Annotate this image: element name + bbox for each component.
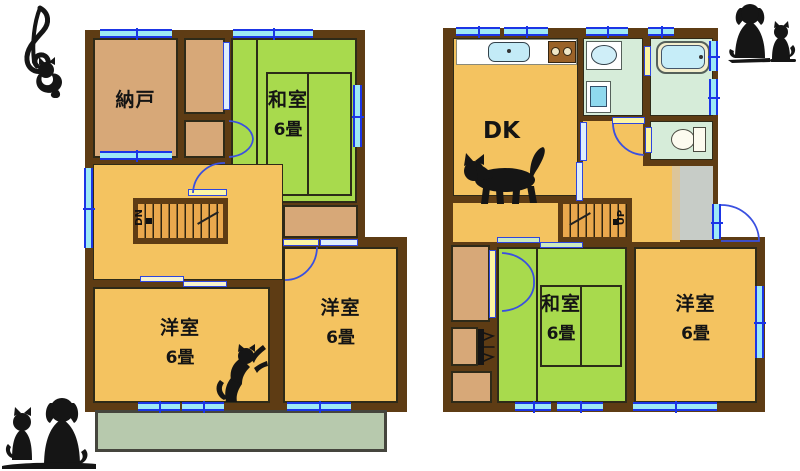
floor2-stairs-label: DN [134,209,145,226]
floor1-closet-2 [451,327,478,366]
room-name: 洋室 [110,312,250,344]
folding-closet-door [476,327,496,367]
room-name: 洋室 [283,292,398,324]
stove-burner [563,47,572,56]
floor2-closet-a-slider [223,42,230,110]
floor1-closet-3 [451,371,492,403]
stove-burner [551,47,560,56]
room-name: 納戸 [93,84,178,116]
bathroom-door [644,46,651,76]
reaching-cat-icon [212,344,268,404]
room-name: 和室 [500,288,622,320]
window [287,402,351,411]
floor2-sliding-window [320,239,358,246]
floor2-closet-c [283,205,358,238]
floor1-youshitsu-label: 洋室 6畳 [634,288,757,349]
bathtub-drain [699,55,703,59]
room-name: 洋室 [634,288,757,320]
washroom-door-swing [611,122,646,157]
window [709,41,718,71]
faucet-dot [507,49,511,53]
window [586,27,628,36]
window [100,29,172,38]
floor2-washitsu-label: 和室 6畳 [240,84,336,145]
window [515,402,551,411]
treble-clef-cat-icon [6,4,74,98]
wash-basin-bowl [591,45,617,65]
floor2-closet-a [184,38,225,114]
toilet-bowl [671,129,695,150]
room-name: 和室 [240,84,336,116]
floor2-hall-sliding-door [183,281,227,287]
floor2-washitsu-door-swing [189,160,229,196]
floor1-closet-1-door [489,250,496,318]
window [633,402,717,411]
floor2-balcony [95,410,387,452]
floor1-closet-1 [451,245,490,322]
room-size: 6畳 [634,320,757,349]
cat-and-dog-icon [2,396,97,471]
washing-machine-drum [590,86,607,107]
window [709,79,718,115]
window [557,402,603,411]
floor2-youshitsu-right-door [283,239,319,246]
room-size: 6畳 [500,320,622,349]
floor1-genkan [680,166,713,240]
floor1-washitsu-label: 和室 6畳 [500,288,622,349]
floor2-youshitsu-right-label: 洋室 6畳 [283,292,398,353]
floor1-stairs-marker [613,219,619,225]
toilet-tank [693,127,706,152]
window [233,29,313,38]
dk-partition-slider [580,122,587,161]
window [100,151,172,160]
entrance-door-swing [720,203,764,243]
window [138,402,180,411]
washitsu-sliding-door [497,237,540,243]
room-size: 6畳 [240,116,336,145]
floor2-hall-sliding-door [140,276,184,282]
washitsu-sliding-door [540,242,583,248]
window [456,27,500,36]
floor2-stairs-marker [146,218,152,224]
window [504,27,548,36]
floor1-dk-label: DK [483,118,520,144]
floor2-youshitsu-right-door-swing [284,246,318,282]
floor1-genkan-step [672,166,680,240]
floor2-closet-b [184,120,225,158]
window [648,27,674,36]
walking-cat-icon [460,146,556,206]
toilet-door [645,127,652,153]
floor-plan-image: DN 納戸 和室 6畳 洋室 6畳 洋室 6畳 [0,0,800,471]
dk-partition-slider [576,162,583,201]
floor2-nando-label: 納戸 [93,84,178,116]
dog-and-cat-icon [728,2,798,64]
room-size: 6畳 [283,324,398,353]
window [84,168,93,248]
window [353,85,362,147]
